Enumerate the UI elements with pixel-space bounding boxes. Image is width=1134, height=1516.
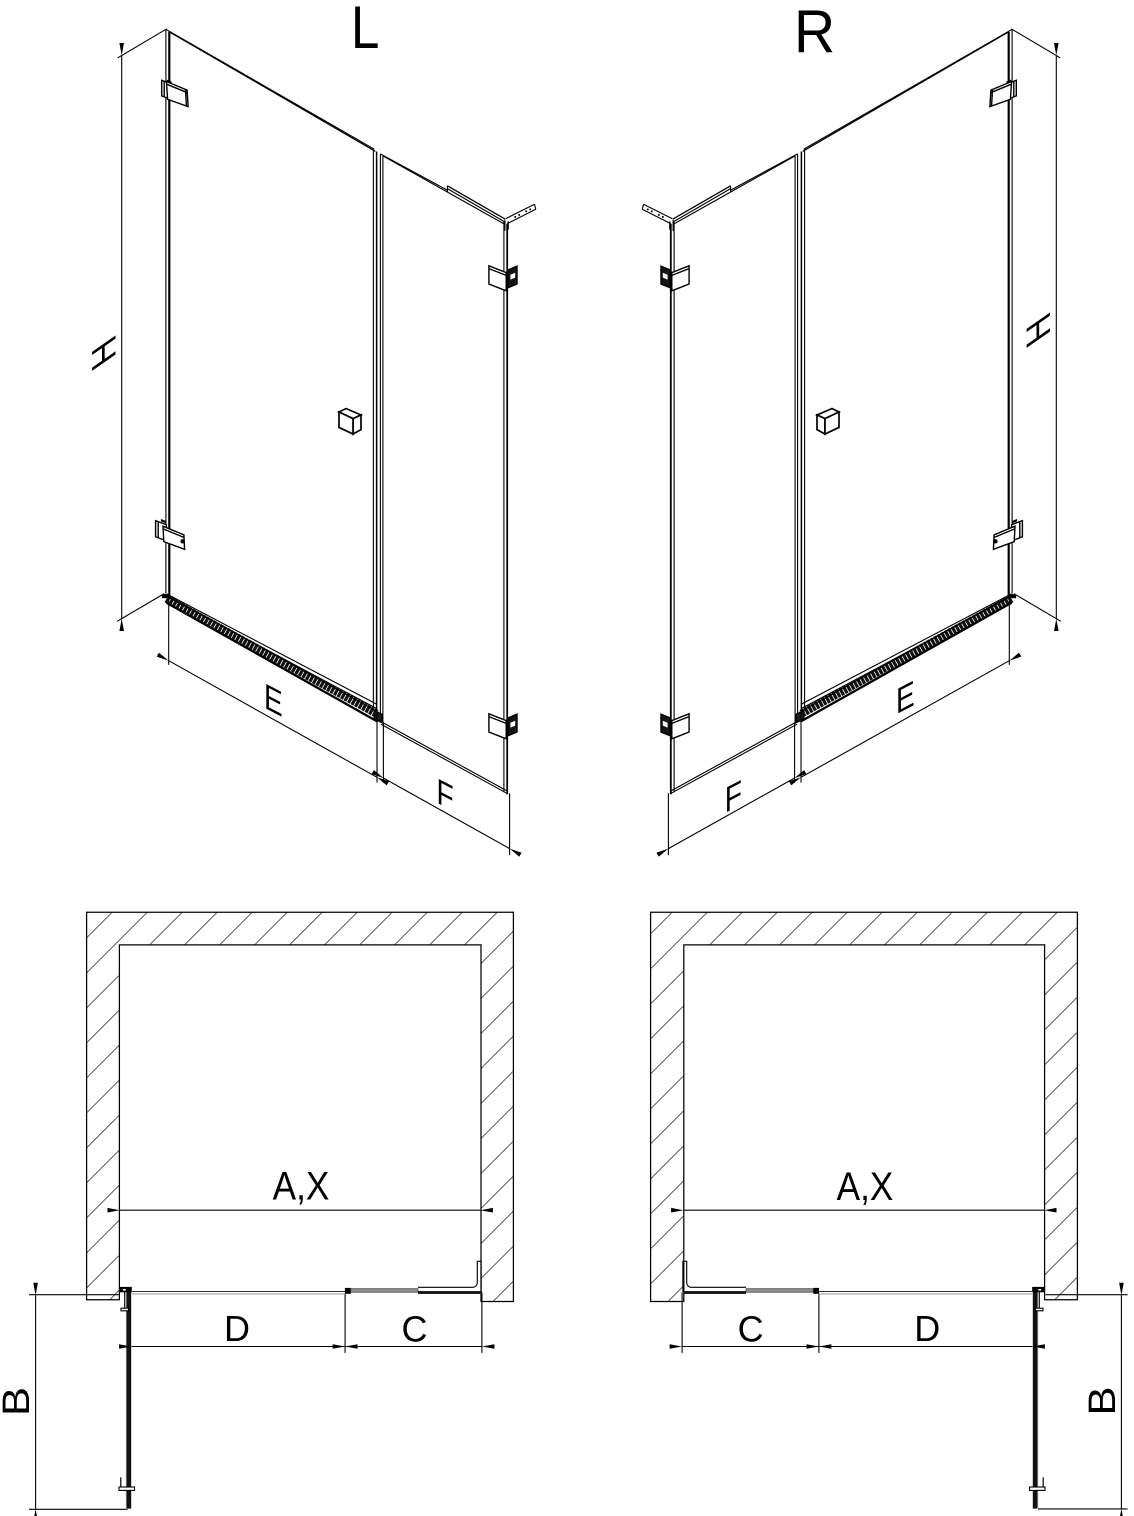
svg-text:R: R bbox=[794, 0, 835, 66]
svg-text:B: B bbox=[0, 1387, 37, 1416]
svg-text:D: D bbox=[224, 1308, 250, 1349]
svg-text:B: B bbox=[1081, 1386, 1124, 1415]
svg-text:C: C bbox=[738, 1309, 764, 1350]
svg-text:L: L bbox=[351, 0, 379, 61]
svg-text:A,X: A,X bbox=[837, 1164, 894, 1209]
svg-text:D: D bbox=[914, 1308, 940, 1349]
svg-text:C: C bbox=[402, 1309, 428, 1350]
svg-text:A,X: A,X bbox=[273, 1163, 330, 1208]
